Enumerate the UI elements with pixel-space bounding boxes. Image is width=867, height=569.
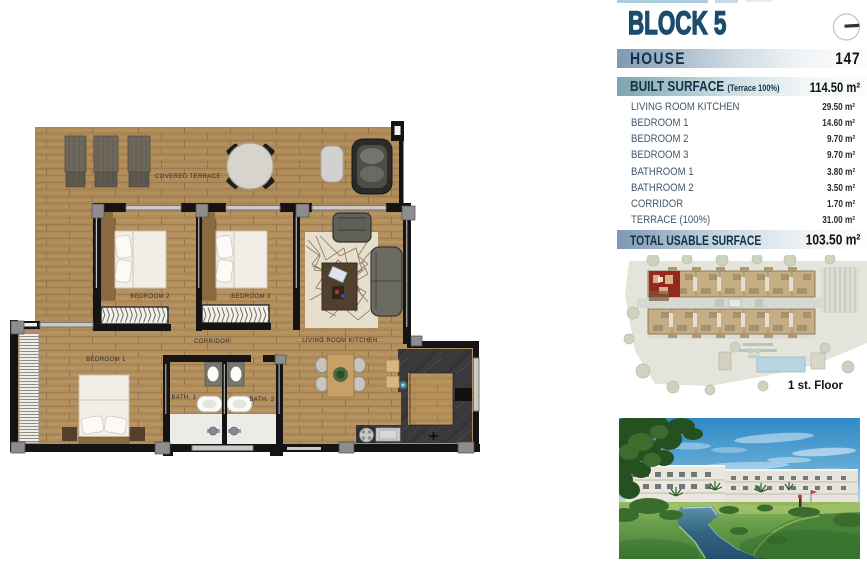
svg-text:BEDROOM 3: BEDROOM 3 <box>231 294 271 300</box>
svg-text:CORRIDOR: CORRIDOR <box>194 339 230 345</box>
svg-text:BEDROOM 2: BEDROOM 2 <box>130 294 170 300</box>
svg-text:BATH. 1: BATH. 1 <box>171 395 196 401</box>
svg-text:COVERED TERRACE: COVERED TERRACE <box>155 174 221 180</box>
svg-text:BEDROOM 1: BEDROOM 1 <box>86 357 126 363</box>
svg-text:LIVING ROOM KITCHEN: LIVING ROOM KITCHEN <box>302 338 378 344</box>
svg-text:BATH. 2: BATH. 2 <box>249 397 274 403</box>
